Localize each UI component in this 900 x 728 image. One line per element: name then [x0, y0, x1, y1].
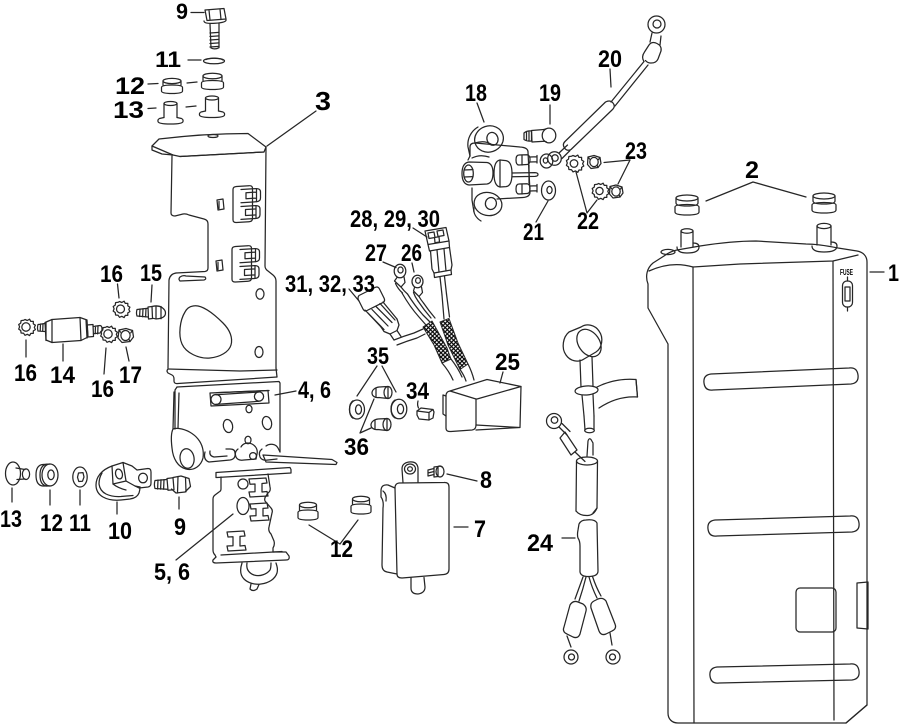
svg-text:7: 7: [474, 516, 486, 543]
svg-text:16: 16: [14, 360, 37, 387]
svg-text:35: 35: [367, 343, 389, 370]
svg-text:11: 11: [69, 510, 91, 537]
svg-text:13: 13: [113, 97, 144, 124]
svg-text:27: 27: [365, 240, 387, 267]
svg-text:5, 6: 5, 6: [154, 559, 190, 586]
svg-text:20: 20: [598, 46, 622, 73]
svg-text:8: 8: [480, 467, 492, 494]
svg-text:12: 12: [115, 73, 145, 100]
svg-text:22: 22: [577, 208, 599, 235]
svg-text:9: 9: [174, 514, 186, 541]
svg-text:10: 10: [108, 518, 132, 545]
svg-text:21: 21: [523, 219, 544, 246]
svg-text:25: 25: [495, 349, 520, 376]
svg-text:18: 18: [465, 80, 487, 107]
svg-text:31, 32, 33: 31, 32, 33: [285, 271, 375, 298]
svg-text:11: 11: [155, 47, 181, 72]
svg-text:23: 23: [625, 138, 647, 165]
svg-text:FUSE: FUSE: [840, 268, 853, 277]
svg-text:34: 34: [406, 378, 430, 405]
svg-text:15: 15: [140, 260, 162, 287]
svg-text:26: 26: [401, 240, 422, 267]
svg-text:12: 12: [330, 536, 353, 563]
svg-text:12: 12: [40, 510, 63, 537]
svg-text:13: 13: [0, 506, 22, 533]
svg-text:3: 3: [315, 86, 331, 116]
svg-text:4, 6: 4, 6: [298, 377, 331, 404]
svg-text:17: 17: [119, 362, 142, 389]
svg-text:16: 16: [100, 261, 123, 288]
svg-text:24: 24: [527, 530, 554, 557]
svg-text:9: 9: [176, 0, 188, 24]
svg-text:1: 1: [888, 260, 899, 287]
svg-text:28, 29, 30: 28, 29, 30: [350, 206, 440, 233]
svg-text:36: 36: [344, 434, 369, 461]
svg-text:2: 2: [745, 157, 759, 184]
svg-text:16: 16: [91, 376, 114, 403]
svg-text:14: 14: [50, 362, 76, 389]
svg-text:19: 19: [539, 80, 561, 107]
